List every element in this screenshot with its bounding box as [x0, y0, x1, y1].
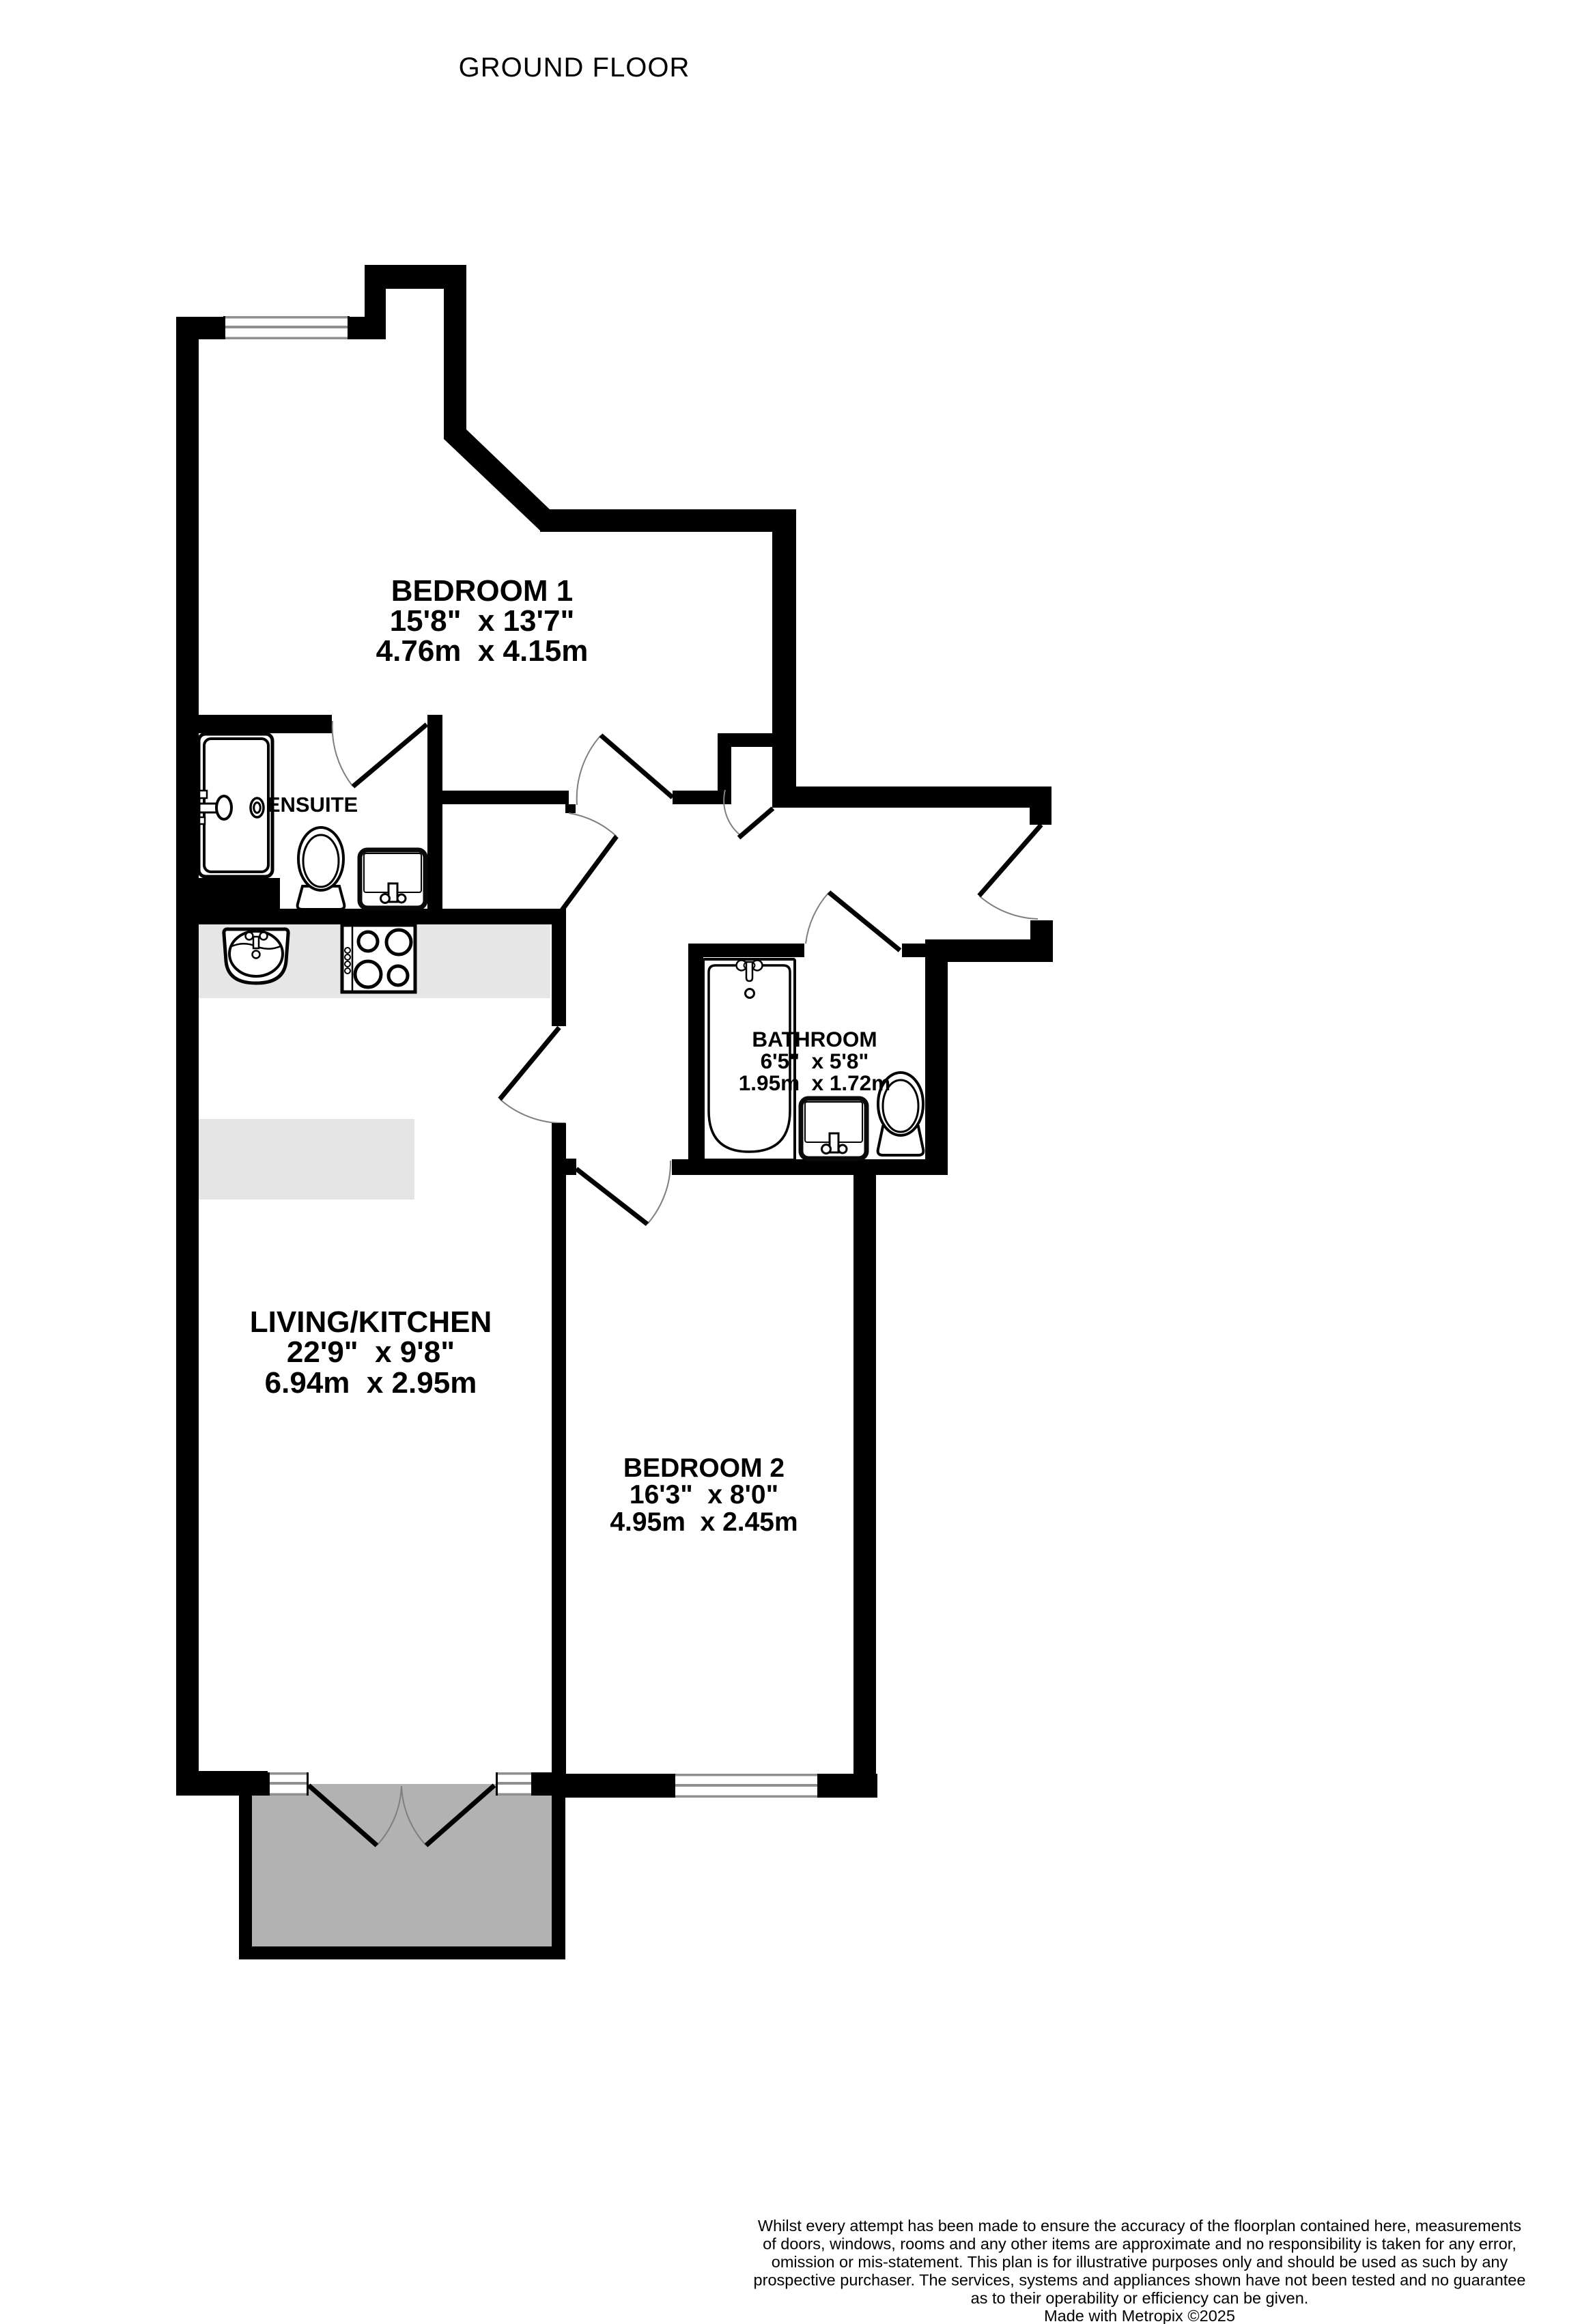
svg-text:prospective purchaser. The ser: prospective purchaser. The services, sys…	[754, 2271, 1526, 2289]
svg-text:15'8" x 13'7": 15'8" x 13'7"	[390, 604, 575, 638]
svg-text:BATHROOM: BATHROOM	[752, 1027, 877, 1051]
svg-text:Whilst every attempt has been: Whilst every attempt has been made to en…	[758, 2217, 1521, 2235]
svg-text:BEDROOM 1: BEDROOM 1	[391, 574, 573, 608]
svg-text:omission or mis-statement. Thi: omission or mis-statement. This plan is …	[772, 2253, 1508, 2271]
svg-text:ENSUITE: ENSUITE	[266, 793, 358, 817]
svg-text:GROUND FLOOR: GROUND FLOOR	[459, 53, 690, 83]
svg-text:6'5" x 5'8": 6'5" x 5'8"	[761, 1049, 869, 1073]
svg-text:1.95m x 1.72m: 1.95m x 1.72m	[739, 1071, 890, 1095]
svg-text:4.95m x 2.45m: 4.95m x 2.45m	[610, 1507, 797, 1537]
svg-text:Made with Metropix ©2025: Made with Metropix ©2025	[1044, 2307, 1235, 2324]
svg-text:4.76m x 4.15m: 4.76m x 4.15m	[376, 634, 589, 668]
svg-text:of doors, windows, rooms and a: of doors, windows, rooms and any other i…	[763, 2235, 1516, 2253]
svg-text:as to their operability or eff: as to their operability or efficiency ca…	[971, 2289, 1309, 2307]
svg-text:BEDROOM 2: BEDROOM 2	[623, 1454, 785, 1483]
svg-text:LIVING/KITCHEN: LIVING/KITCHEN	[250, 1305, 492, 1339]
svg-text:6.94m x 2.95m: 6.94m x 2.95m	[265, 1366, 477, 1400]
svg-text:16'3" x 8'0": 16'3" x 8'0"	[630, 1480, 778, 1510]
svg-text:22'9" x 9'8": 22'9" x 9'8"	[287, 1335, 455, 1369]
